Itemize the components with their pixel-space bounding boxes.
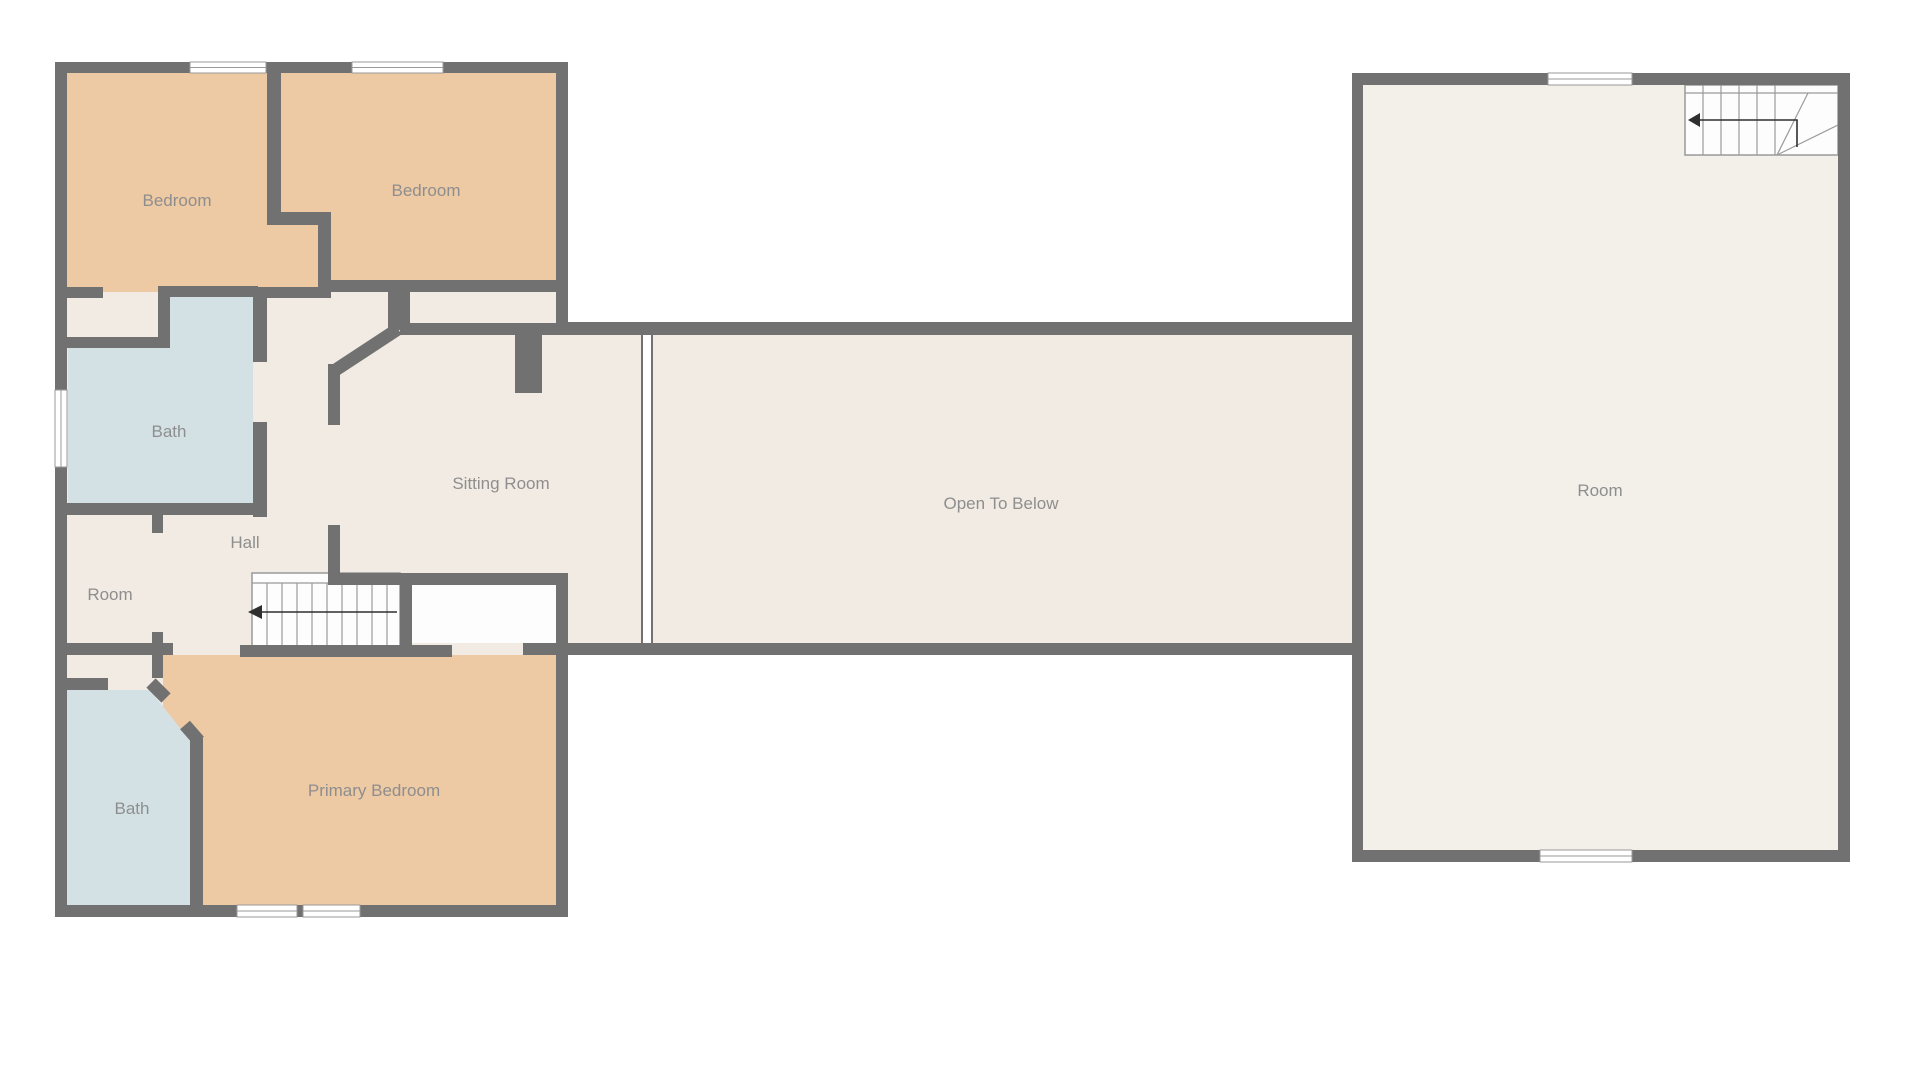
room-label-bedroom-2: Bedroom [392,181,461,200]
window [1548,73,1632,85]
gallery-divider [641,334,653,643]
room-label-primary-bedroom: Primary Bedroom [308,781,440,800]
room-label-room-right: Room [1577,481,1622,500]
left-wing-left-wall [55,62,67,917]
right-wing-right-wall [1838,73,1850,862]
room-label-room-small: Room [87,585,132,604]
upper-bath-floor-notch [170,297,253,348]
landing-bottom-wall [523,643,568,655]
left-wing-right-wall-upper [556,62,568,335]
bedroom-divider-wall-lower [318,218,331,298]
lower-bath-floor [67,690,191,905]
bedroom2-bottom-wall [330,280,558,292]
stairwell-right-wall [400,578,412,647]
floor-plan-page: Bedroom Bedroom Bath Hall Room Sitting R… [0,0,1920,1080]
chimney-stub [515,335,542,393]
room-label-bedroom-1: Bedroom [143,191,212,210]
room-label-open-to-below: Open To Below [944,494,1060,513]
gallery-floor [556,334,1352,643]
small-room-bottom-wall [55,643,173,655]
stairs-right [1685,85,1838,155]
primary-bedroom-floor [163,655,556,905]
room-label-sitting-room: Sitting Room [452,474,549,493]
window [303,905,360,917]
room-label-bath-lower: Bath [115,799,150,818]
lower-bath-right-wall [190,738,203,905]
right-wing-floor [1363,85,1838,850]
room-label-hall: Hall [230,533,259,552]
gallery-top-wall [558,322,1352,335]
bath-notch-top-wall [158,286,258,297]
hall-door-stub-top [152,515,163,533]
bedrooms-floor [67,73,558,292]
left-wing-right-wall-lower [556,575,568,917]
upper-bath-right-wall-a [253,292,267,362]
left-wing-top-wall [55,62,568,73]
window [190,62,266,73]
right-wing-left-wall [1352,73,1363,862]
sitting-room-bottom-wall [330,573,568,585]
window [352,62,443,73]
lower-bath-top-wall [55,678,108,690]
bedroom1-bottom-wall [55,287,103,298]
floor-plan-canvas: Bedroom Bedroom Bath Hall Room Sitting R… [0,0,1920,1080]
closet-bottom-wall [55,337,170,348]
room-label-bath-upper: Bath [152,422,187,441]
stair-landing-floor [412,585,556,643]
window [55,390,67,467]
gallery-bottom-wall [568,643,1352,655]
upper-bath-right-wall-b [253,422,267,517]
bedroom-divider-wall [267,73,281,218]
window [1540,850,1632,862]
window [237,905,297,917]
stairwell-bottom-wall [240,645,452,657]
sitting-room-left-wall-a [328,364,340,425]
sitting-room-top-wall [400,323,568,335]
upper-bath-bottom-wall [67,503,267,515]
